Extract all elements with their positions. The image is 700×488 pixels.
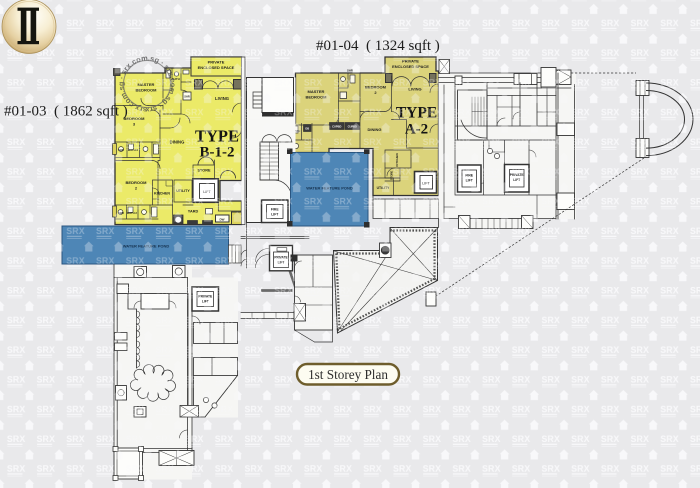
svg-text:1st Storey Plan: 1st Storey Plan (308, 367, 388, 382)
svg-text:#01-04 ( 1324 sqft ): #01-04 ( 1324 sqft ) (316, 38, 440, 54)
svg-text:#01-03 ( 1862 sqft ): #01-03 ( 1862 sqft ) (4, 104, 128, 120)
